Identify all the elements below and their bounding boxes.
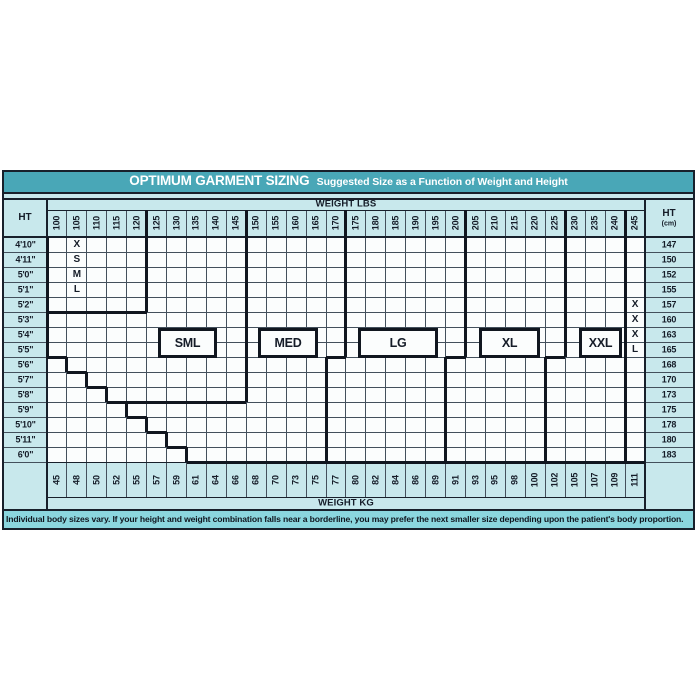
sizing-chart-page: SMLMEDLGXLXXL100105110115120125130135140… bbox=[0, 0, 697, 697]
panel-border bbox=[2, 170, 695, 530]
